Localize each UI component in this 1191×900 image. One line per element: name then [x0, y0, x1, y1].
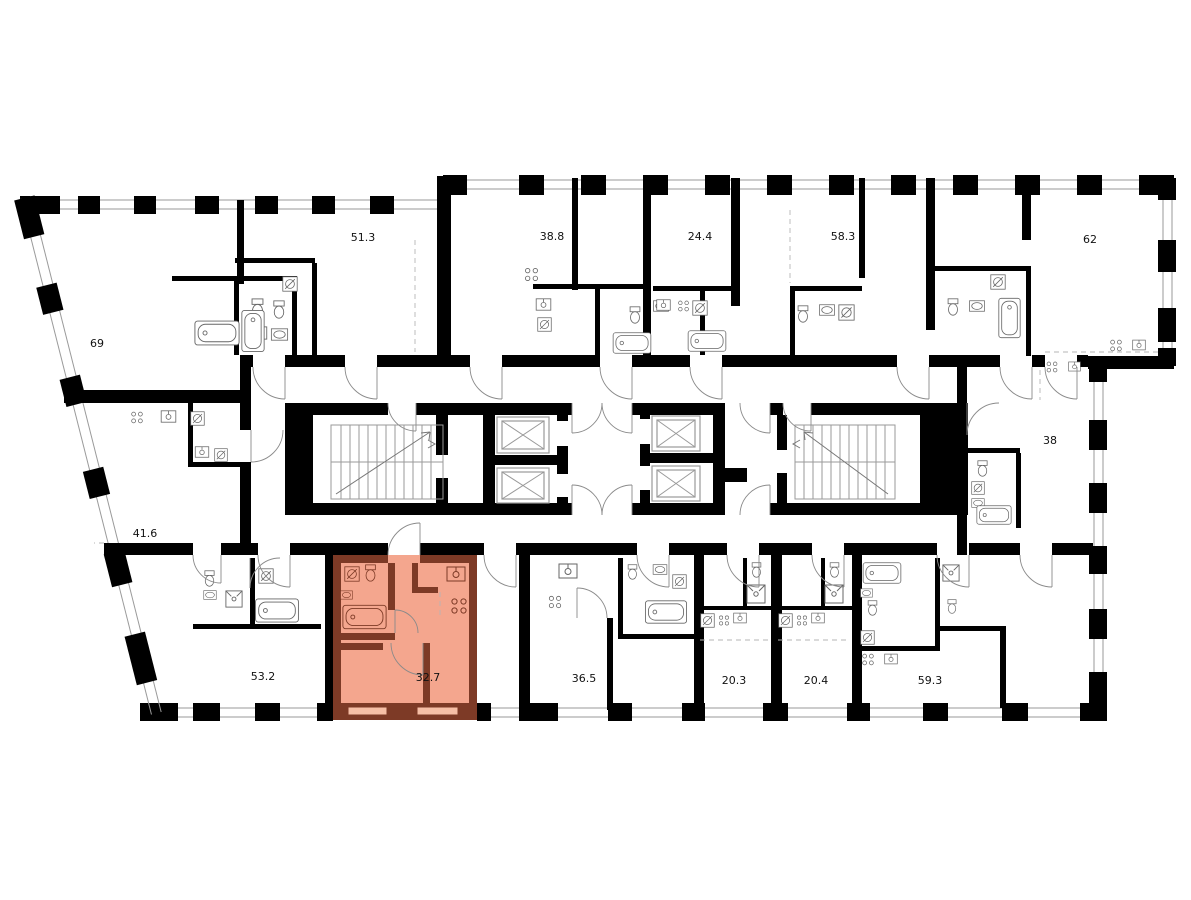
washer-icon	[283, 277, 297, 291]
kitchen-sink-icon	[536, 299, 551, 310]
bathtub-icon	[999, 298, 1020, 337]
unit-area-label-24-4: 24.4	[688, 230, 713, 243]
washer-icon	[779, 614, 793, 628]
sink-icon	[271, 329, 287, 340]
floor-plan-svg: 69 51.3 38.8 24.4 58.3 62 38 41.6 53.2 3…	[0, 0, 1191, 900]
sink-icon	[820, 305, 835, 316]
stove-icon	[719, 616, 728, 625]
washer-icon	[861, 631, 875, 645]
sink-icon	[341, 591, 353, 599]
toilet-icon	[830, 563, 839, 578]
stove-icon	[132, 412, 143, 423]
unit-area-label-38-8: 38.8	[540, 230, 565, 243]
stairs-left-icon	[331, 425, 443, 499]
unit-area-label-69: 69	[90, 337, 104, 350]
stove-icon	[679, 301, 689, 311]
washer-icon	[839, 305, 854, 320]
kitchen-sink-icon	[885, 654, 898, 664]
stove-icon	[1047, 362, 1057, 372]
stove-icon	[525, 268, 537, 280]
unit-area-label-41-6: 41.6	[133, 527, 158, 540]
toilet-icon	[948, 600, 956, 614]
elevator-icon	[652, 416, 700, 451]
sink-icon	[970, 301, 985, 312]
washer-icon	[215, 449, 228, 462]
washer-icon	[701, 614, 715, 628]
core	[285, 403, 968, 515]
elevator-icon	[497, 417, 549, 453]
washer-icon	[673, 575, 687, 589]
stove-icon	[549, 596, 560, 607]
elevator-icon	[497, 468, 549, 503]
bathtub-icon	[688, 331, 726, 351]
stove-icon	[863, 654, 874, 665]
washer-icon	[538, 318, 552, 332]
washer-icon	[991, 275, 1005, 289]
fixtures	[132, 268, 1146, 664]
toilet-icon	[366, 565, 376, 581]
bathtub-icon	[195, 321, 239, 345]
shower-icon	[825, 585, 843, 603]
toilet-icon	[628, 565, 637, 580]
washer-icon	[191, 412, 205, 426]
unit-area-label-36-5: 36.5	[572, 672, 597, 685]
toilet-icon	[978, 461, 987, 476]
elevator-icon	[652, 466, 700, 501]
unit-area-label-38: 38	[1043, 434, 1057, 447]
stove-icon	[797, 616, 806, 625]
toilet-icon	[948, 299, 958, 315]
kitchen-sink-icon	[657, 300, 671, 311]
washer-icon	[972, 482, 985, 495]
bathtub-icon	[343, 605, 386, 628]
kitchen-sink-icon	[812, 613, 825, 623]
bathtub-icon	[242, 310, 264, 351]
floor-plan-page: 69 51.3 38.8 24.4 58.3 62 38 41.6 53.2 3…	[0, 0, 1191, 900]
bathtub-icon	[613, 333, 651, 353]
kitchen-sink-icon	[447, 567, 465, 581]
kitchen-sink-icon	[734, 613, 747, 623]
unit-area-label-62: 62	[1083, 233, 1097, 246]
bathtub-icon	[256, 599, 299, 622]
bathtub-icon	[645, 601, 686, 623]
unit-area-label-51-3: 51.3	[351, 231, 376, 244]
kitchen-sink-icon	[1069, 362, 1081, 371]
unit-area-label-20-4: 20.4	[804, 674, 829, 687]
kitchen-sink-icon	[1133, 340, 1146, 350]
kitchen-sink-icon	[559, 564, 577, 578]
bathtub-icon	[977, 506, 1011, 525]
sink-icon	[653, 565, 667, 575]
toilet-icon	[868, 601, 877, 616]
toilet-icon	[630, 307, 640, 323]
stove-icon	[1111, 340, 1122, 351]
washer-icon	[345, 567, 359, 581]
kitchen-sink-icon	[161, 411, 176, 422]
unit-area-label-20-3: 20.3	[722, 674, 747, 687]
shower-icon	[747, 585, 765, 603]
unit-area-label-32-7[interactable]: 32.7	[416, 671, 441, 684]
sink-icon	[861, 589, 873, 597]
shower-icon	[226, 591, 242, 607]
stairs-right-icon	[793, 425, 895, 499]
unit-area-label-58-3: 58.3	[831, 230, 856, 243]
kitchen-sink-icon	[195, 447, 209, 458]
unit-area-label-59-3: 59.3	[918, 674, 943, 687]
unit-area-label-53-2: 53.2	[251, 670, 276, 683]
toilet-icon	[798, 306, 808, 322]
toilet-icon	[752, 563, 761, 578]
sink-icon	[204, 591, 217, 600]
washer-icon	[693, 301, 707, 315]
shower-icon	[943, 565, 959, 581]
bathtub-icon	[863, 563, 901, 583]
toilet-icon	[274, 301, 284, 318]
